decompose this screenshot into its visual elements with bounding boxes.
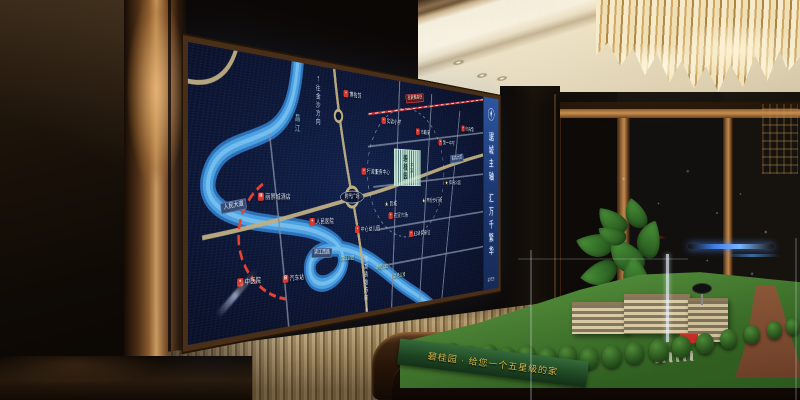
compass-needle: [490, 114, 492, 119]
banner-slogan-top: 踞城主轴: [488, 131, 495, 184]
glass-case-edge: [795, 238, 797, 400]
project-name: 碧桂园: [402, 154, 409, 181]
direction-text: 往金沙方向: [315, 84, 321, 127]
direction-text: 往高铁站方向: [363, 255, 368, 302]
rail-label: 昌景黄高铁: [405, 93, 424, 103]
model-sign-pole: [701, 293, 703, 305]
blue-neon-light: [688, 244, 774, 249]
model-tree: [672, 336, 691, 358]
road-label: 迎宾大道: [450, 153, 464, 163]
banner-slogan-bottom: 汇万千繁华: [488, 193, 495, 259]
blue-neon-light: [724, 254, 780, 257]
model-tree: [720, 329, 737, 349]
banner-brand: 碧桂园: [488, 276, 495, 283]
model-tree: [602, 345, 622, 368]
bronze-pillar: [124, 0, 186, 400]
road-label: 人民大道: [220, 198, 247, 214]
direction-indicator-north: ↑ 往金沙方向: [315, 74, 321, 127]
wall-left: [0, 0, 130, 400]
model-tree: [649, 339, 669, 362]
model-tree: [696, 333, 714, 354]
slogan-banner: 踞城主轴 汇万千繁华 碧桂园: [483, 97, 498, 291]
bronze-lattice-reflection: [762, 104, 798, 174]
model-tree: [744, 325, 760, 344]
location-map: 碧桂园 本案 时代广场 昌江 ↑ 往金沙方向 往高铁站方向 ↓ +人民医院+中医…: [188, 42, 483, 345]
project-site-block: 碧桂园 本案: [394, 148, 421, 186]
pillar-seam: [168, 0, 171, 400]
glass-case-top-edge: [518, 258, 688, 260]
project-tag: 本案: [409, 162, 413, 174]
ceiling-spotlight: [496, 75, 509, 82]
model-building: [572, 302, 628, 334]
ceiling-spotlight: [476, 72, 489, 79]
floor: [0, 356, 252, 400]
model-tree: [625, 342, 644, 364]
road-label: 滨江西路: [311, 248, 332, 258]
model-oval-sign: [692, 283, 712, 294]
down-arrow-icon: ↓: [365, 303, 368, 311]
model-tree: [767, 321, 782, 339]
model-tree: [786, 318, 800, 335]
model-building: [624, 294, 690, 334]
compass-icon: [488, 107, 494, 121]
showroom-photo: 碧桂园 本案 时代广场 昌江 ↑ 往金沙方向 往高铁站方向 ↓ +人民医院+中医…: [0, 0, 800, 400]
up-arrow-icon: ↑: [317, 74, 320, 83]
direction-indicator-south: 往高铁站方向 ↓: [363, 255, 368, 312]
glass-case-corner: [666, 254, 669, 342]
ceiling-spotlight: [452, 59, 466, 67]
glass-case-edge: [530, 250, 532, 400]
